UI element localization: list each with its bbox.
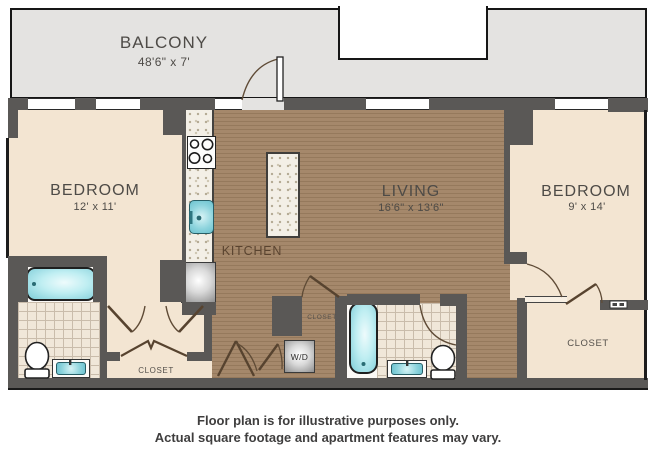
wall-segment	[163, 98, 186, 135]
wall-segment	[429, 98, 504, 110]
bathroom-left-sink-icon	[56, 362, 86, 375]
bathtub-right-icon	[349, 302, 378, 374]
wall-segment	[517, 298, 527, 388]
wall-segment	[8, 378, 648, 388]
wall-segment	[504, 145, 510, 252]
disclaimer-line-2: Actual square footage and apartment feat…	[0, 430, 656, 445]
wall-segment	[504, 98, 533, 145]
window	[28, 98, 75, 110]
wall-segment	[533, 98, 555, 110]
balcony-label: BALCONY	[120, 33, 208, 53]
balcony-door-opening	[242, 98, 284, 110]
wall-segment	[504, 252, 527, 264]
washer-dryer-unit: W/D	[284, 340, 315, 373]
doorway-threshold	[525, 296, 567, 303]
wall-segment	[103, 352, 120, 361]
window	[555, 98, 608, 110]
refrigerator-icon	[181, 262, 216, 303]
wall-segment	[335, 296, 347, 378]
wall-segment	[8, 110, 18, 138]
wall-segment	[160, 260, 186, 302]
balcony-notch	[338, 6, 488, 60]
wall-segment	[75, 98, 96, 110]
wall-segment	[18, 256, 28, 302]
wall-segment	[186, 98, 215, 110]
wall-segment	[8, 256, 18, 388]
closet-right-label: CLOSET	[567, 338, 609, 349]
window	[366, 98, 429, 110]
bathtub-left-icon	[26, 267, 96, 301]
wall-segment	[204, 302, 212, 358]
wall-segment	[272, 296, 302, 336]
balcony-area	[10, 8, 647, 99]
disclaimer-line-1: Floor plan is for illustrative purposes …	[0, 413, 656, 428]
closet-hall-label: CLOSET	[138, 366, 174, 375]
washer-dryer-label: W/D	[291, 352, 308, 362]
bedroom-left-label: BEDROOM	[50, 182, 140, 200]
bedroom-right-dims: 9' x 14'	[568, 201, 605, 213]
living-dims: 16'6" x 13'6"	[378, 202, 444, 214]
wall-segment	[140, 98, 163, 110]
wall-segment	[93, 256, 107, 302]
kitchen-sink-icon	[189, 200, 214, 234]
window	[215, 98, 242, 110]
kitchen-label: KITCHEN	[222, 244, 282, 258]
stove-icon	[187, 136, 216, 169]
floor-plan: W/D	[0, 0, 656, 452]
wall-segment	[100, 302, 107, 378]
wall-segment	[8, 98, 28, 110]
wall-segment	[182, 135, 186, 262]
wall-segment	[284, 98, 366, 110]
bathroom-right-sink-icon	[391, 363, 423, 375]
wall-segment	[187, 352, 212, 361]
wall-segment	[456, 294, 467, 388]
balcony-dims: 48'6" x 7'	[138, 55, 190, 69]
wall-segment	[6, 138, 9, 258]
closet-mid-label: CLOSET	[307, 314, 337, 321]
window	[96, 98, 140, 110]
bedroom-left-dims: 12' x 11'	[73, 201, 116, 213]
wall-segment	[644, 110, 647, 380]
wall-segment	[608, 98, 648, 112]
bedroom-right-label: BEDROOM	[541, 183, 631, 201]
wall-segment	[347, 294, 420, 305]
kitchen-island	[266, 152, 300, 238]
living-label: LIVING	[382, 183, 440, 201]
wall-segment	[600, 300, 648, 310]
